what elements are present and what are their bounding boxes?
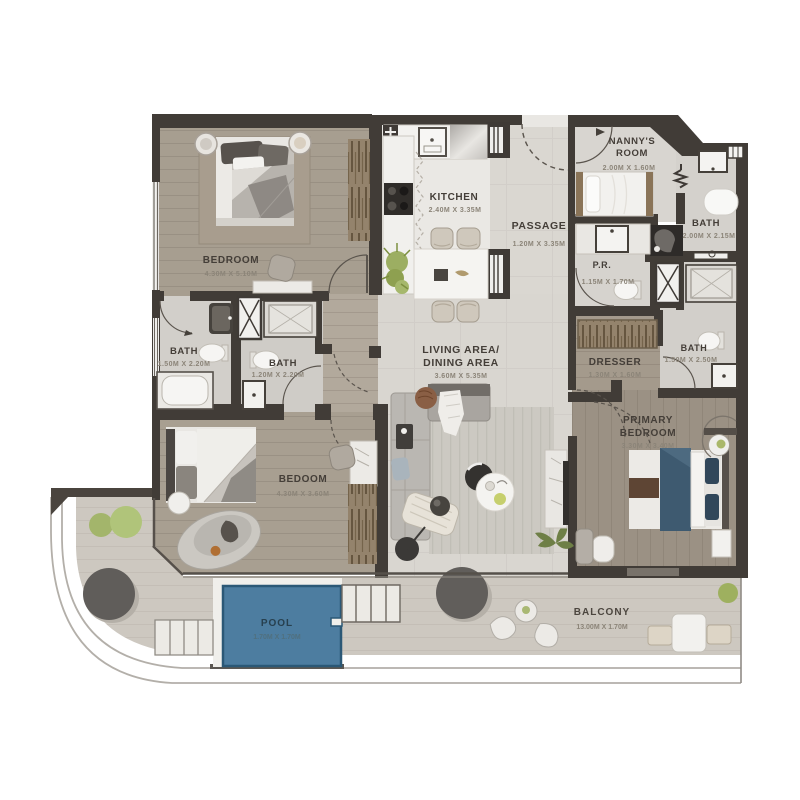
svg-text:4.30M X 5.10M: 4.30M X 5.10M [205, 271, 258, 278]
svg-text:PRIMARY: PRIMARY [623, 415, 673, 426]
svg-text:PASSAGE: PASSAGE [512, 220, 567, 232]
svg-text:1.50M X 2.20M: 1.50M X 2.20M [158, 361, 211, 368]
svg-text:2.00M X 1.60M: 2.00M X 1.60M [603, 165, 656, 172]
svg-text:BATH: BATH [170, 346, 198, 357]
svg-text:LIVING AREA/: LIVING AREA/ [422, 344, 499, 356]
svg-text:1.20M X 3.35M: 1.20M X 3.35M [513, 241, 566, 248]
svg-text:1.20M X 2.20M: 1.20M X 2.20M [252, 372, 305, 379]
svg-text:BEDROOM: BEDROOM [620, 428, 676, 439]
svg-text:3.60M X 5.35M: 3.60M X 5.35M [435, 373, 488, 380]
svg-text:NANNY'S: NANNY'S [609, 136, 656, 147]
svg-text:ROOM: ROOM [616, 148, 648, 159]
svg-text:BATH: BATH [269, 358, 297, 369]
svg-text:3.30M X 3.40M: 3.30M X 3.40M [622, 443, 675, 450]
svg-text:13.00M X 1.70M: 13.00M X 1.70M [576, 624, 628, 631]
svg-text:DINING AREA: DINING AREA [423, 357, 499, 369]
svg-text:BEDOOM: BEDOOM [279, 474, 328, 485]
svg-text:BATH: BATH [681, 343, 708, 353]
svg-text:2.40M X 3.35M: 2.40M X 3.35M [429, 207, 482, 214]
svg-text:1.15M X 1.70M: 1.15M X 1.70M [582, 279, 635, 286]
svg-text:P.R.: P.R. [593, 260, 612, 270]
svg-text:1.50M X 2.50M: 1.50M X 2.50M [665, 357, 718, 364]
svg-text:1.30M X 1.60M: 1.30M X 1.60M [589, 372, 642, 379]
svg-text:2.00M X 2.15M: 2.00M X 2.15M [683, 233, 736, 240]
svg-text:POOL: POOL [261, 618, 293, 629]
svg-text:BATH: BATH [692, 218, 720, 229]
svg-text:BEDROOM: BEDROOM [203, 255, 259, 266]
svg-text:DRESSER: DRESSER [589, 357, 642, 368]
svg-text:1.70M X 1.70M: 1.70M X 1.70M [253, 634, 301, 641]
svg-text:BALCONY: BALCONY [574, 607, 630, 618]
svg-text:KITCHEN: KITCHEN [430, 192, 479, 203]
svg-text:4.30M X 3.60M: 4.30M X 3.60M [277, 491, 330, 498]
